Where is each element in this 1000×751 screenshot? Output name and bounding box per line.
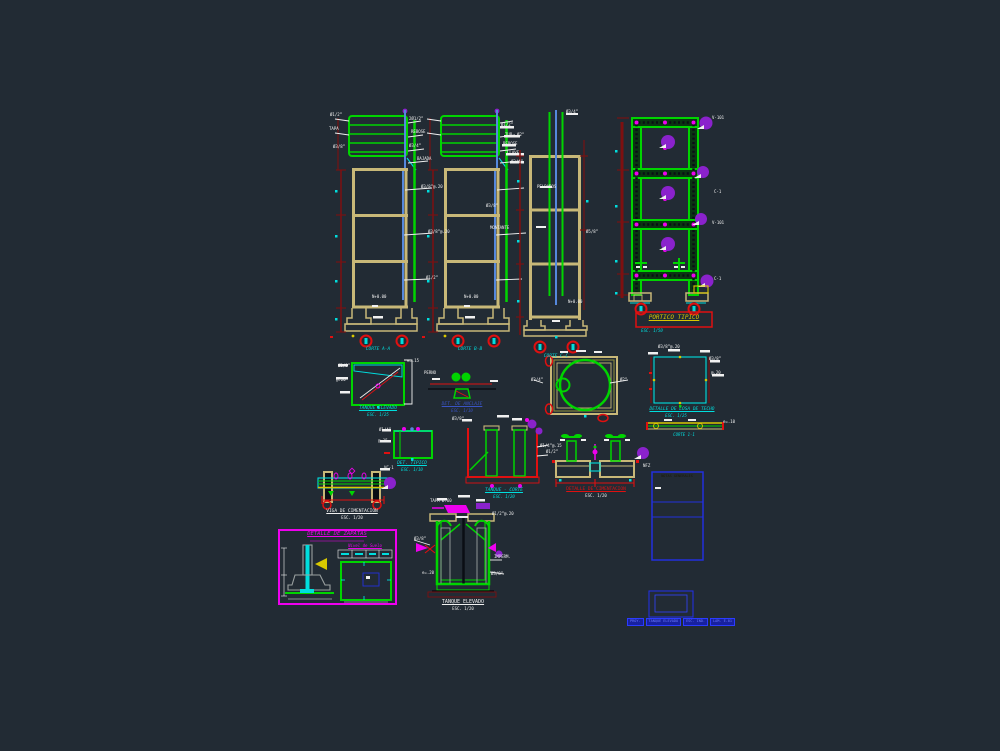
callout-label[interactable]: Ø3/4” xyxy=(566,110,578,114)
detail-wall-section[interactable] xyxy=(462,415,548,488)
callout-label[interactable]: Ø1/4” xyxy=(379,428,391,432)
callout-label[interactable]: Ø1/4”@.15 xyxy=(540,444,562,448)
detail-zapatas-box[interactable] xyxy=(279,530,396,604)
callout-label[interactable]: MONTANTE xyxy=(490,226,509,230)
title-stamp[interactable] xyxy=(649,588,693,617)
callout-label[interactable]: Ø3/4” xyxy=(409,144,421,148)
callout-label[interactable]: PERNO xyxy=(424,371,436,375)
callout-label[interactable]: Ø2” xyxy=(620,378,627,382)
callout-label[interactable]: @.15 xyxy=(378,439,388,443)
callout-label[interactable]: N+0.00 xyxy=(372,295,386,299)
detail-foundation-section[interactable] xyxy=(552,434,649,487)
callout-label[interactable]: Ø3/8” xyxy=(486,204,498,208)
callout-label[interactable]: Ø1/2” xyxy=(330,113,342,117)
detail-anchor[interactable] xyxy=(428,373,498,399)
callout-label[interactable]: Ø1/2”@.20 xyxy=(492,512,514,516)
callout-label[interactable]: REBOSE xyxy=(411,130,425,134)
callout-label[interactable]: IMPERM. xyxy=(494,555,511,559)
callout-label[interactable]: C-1 xyxy=(714,277,721,281)
callout-label[interactable]: e=.20 xyxy=(422,571,434,575)
callout-label[interactable]: Ø3/8” xyxy=(414,537,426,541)
callout-label[interactable]: Ø1/2” xyxy=(426,276,438,280)
portico-frame[interactable] xyxy=(615,117,714,315)
callout-label[interactable]: LLAVE xyxy=(507,151,519,155)
callout-label[interactable]: e=.15 xyxy=(407,359,419,363)
detail-typical-small[interactable] xyxy=(380,427,432,461)
callout-label[interactable]: Ø3/8” xyxy=(338,364,350,368)
callout-label[interactable]: TAPA Ø.60 xyxy=(430,499,452,503)
callout-label[interactable]: PELDAÑOS xyxy=(537,185,556,189)
callout-label[interactable]: NFZ xyxy=(643,464,650,468)
portico-title-box[interactable] xyxy=(636,312,712,327)
notes-table[interactable] xyxy=(652,472,703,560)
callout-label[interactable]: Ø3/8” xyxy=(709,357,721,361)
tank-plan-view[interactable] xyxy=(534,350,628,422)
callout-label[interactable]: VC-1 xyxy=(384,466,394,470)
callout-label[interactable]: Ø3/8” xyxy=(491,572,503,576)
callout-label[interactable]: N+0.00 xyxy=(568,300,582,304)
cad-canvas[interactable]: CORTE A-A CORTE B-B CORTE C-C PORTICO TI… xyxy=(0,0,1000,751)
callout-label[interactable]: TAPA xyxy=(329,127,339,131)
callout-label[interactable]: Ø1/2” xyxy=(546,450,558,454)
callout-label[interactable]: Ø3/4” xyxy=(511,160,523,164)
callout-label[interactable]: TUB. Ø2” xyxy=(505,133,524,137)
callout-label[interactable]: V-101 xyxy=(712,116,724,120)
banner-segment[interactable]: TANQUE ELEVADO xyxy=(646,618,682,626)
slab-reinforcement-plan[interactable] xyxy=(646,349,724,430)
callout-label[interactable]: REBOSE xyxy=(503,142,517,146)
callout-label[interactable]: C-1 xyxy=(714,190,721,194)
callout-label[interactable]: Ø1/2” xyxy=(501,123,513,127)
banner-segment[interactable]: ESC. IND. xyxy=(683,618,708,626)
callout-label[interactable]: @.20 xyxy=(711,371,721,375)
callout-label[interactable]: Ø3/8” xyxy=(333,145,345,149)
callout-label[interactable]: BAJADA xyxy=(417,157,431,161)
callout-label[interactable]: Ø5/8” xyxy=(586,230,598,234)
callout-label[interactable]: N+0.00 xyxy=(464,295,478,299)
callout-label[interactable]: Ø3/4” xyxy=(531,378,543,382)
detail-tank-center-section[interactable] xyxy=(414,495,504,597)
banner-segment[interactable]: LAM. E-01 xyxy=(710,618,735,626)
banner-segment[interactable]: PROY. xyxy=(627,618,644,626)
callout-label[interactable]: Ø3/8”@.20 xyxy=(658,345,680,349)
callout-label[interactable]: e=.10 xyxy=(723,420,735,424)
cad-drawing-layer xyxy=(0,0,1000,751)
ladder-tower-elevation[interactable] xyxy=(516,110,589,353)
title-banner[interactable]: PROY.TANQUE ELEVADOESC. IND.LAM. E-01 xyxy=(627,618,743,626)
callout-label[interactable]: @.20 xyxy=(336,378,346,382)
callout-label[interactable]: Ø3/8”@.20 xyxy=(421,185,443,189)
callout-label[interactable]: Ø3/8” xyxy=(452,417,464,421)
callout-label[interactable]: V-101 xyxy=(712,221,724,225)
detail-foundation-beam[interactable] xyxy=(318,468,396,509)
callout-label[interactable]: Ø3/8”@.20 xyxy=(428,230,450,234)
section-bubbles xyxy=(659,117,714,288)
callout-label[interactable]: 2Ø1/2” xyxy=(409,117,423,121)
